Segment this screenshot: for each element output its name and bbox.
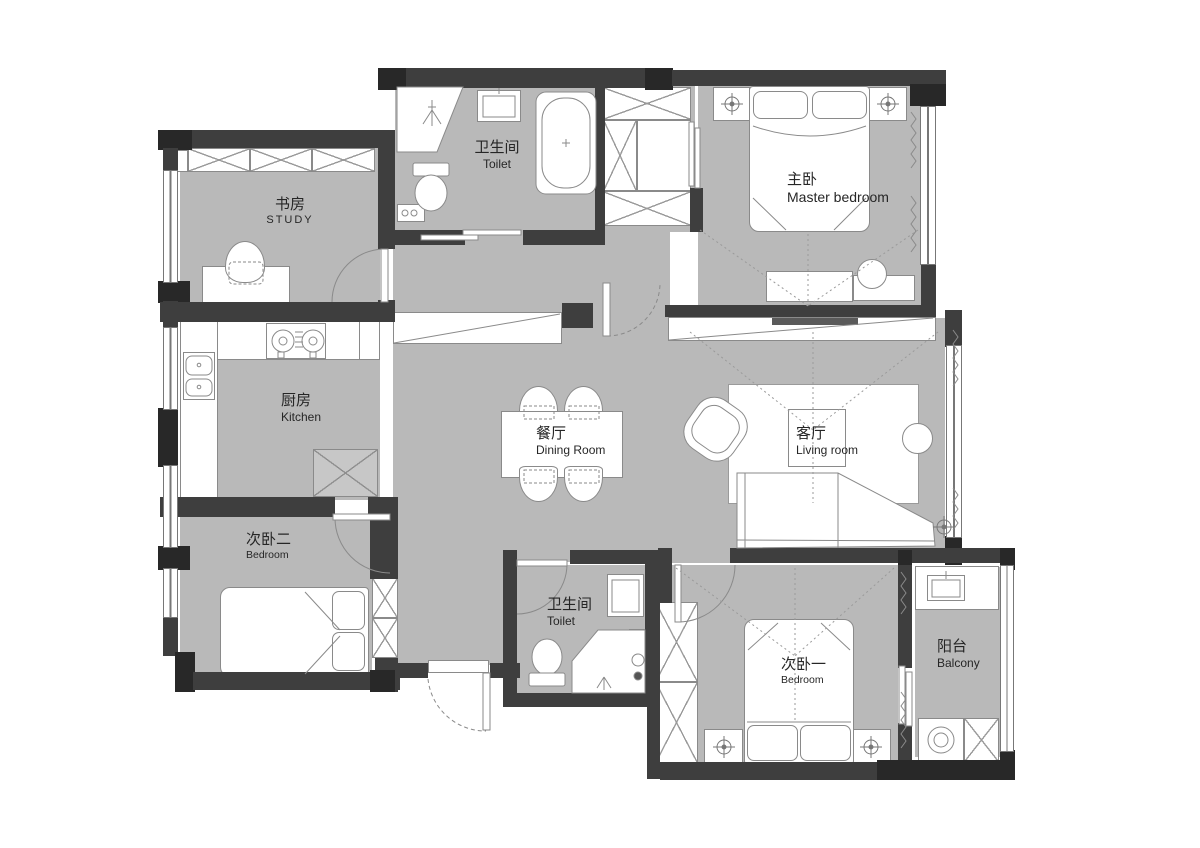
room-label-study: 书房 STUDY <box>240 196 340 227</box>
room-label-en: Master bedroom <box>787 189 889 206</box>
toilet-fixture-top <box>413 163 449 211</box>
curtain <box>911 112 916 168</box>
floor-plan: 书房 STUDY 卫生间 Toilet 主卧 Master bedroom 厨房… <box>0 0 1200 848</box>
room-label-zh: 卫生间 <box>452 139 542 157</box>
door-leaf-bedroom2 <box>333 514 390 520</box>
room-label-en: Toilet <box>452 157 542 171</box>
door-arc-entrance <box>428 679 486 731</box>
balcony-sink-basin <box>932 571 960 597</box>
room-label-en: Dining Room <box>536 443 605 457</box>
sliding-door-closet <box>689 122 694 186</box>
shelf-knobs <box>402 210 417 216</box>
room-label-en: Kitchen <box>281 410 321 424</box>
shower-bottom <box>572 630 645 693</box>
door-arc-study <box>332 249 385 302</box>
stove-burners <box>272 330 324 358</box>
room-label-en: STUDY <box>240 214 340 227</box>
door-leaf-bedroom1 <box>675 565 681 622</box>
room-label-zh: 次卧一 <box>781 656 826 674</box>
washer-drum <box>928 727 954 753</box>
lamp-icon <box>713 736 735 758</box>
room-label-en: Bedroom <box>781 674 826 687</box>
lamp-icon <box>860 736 882 758</box>
door-arc-bedroom1 <box>678 565 735 622</box>
sliding-door-balcony <box>906 672 912 726</box>
room-label-kitchen: 厨房 Kitchen <box>281 392 321 424</box>
sliding-door-closet <box>695 128 700 188</box>
door-leaf-toilet-bottom <box>517 560 567 566</box>
door-leaf-entrance <box>483 673 490 730</box>
room-label-zh: 餐厅 <box>536 425 605 443</box>
sliding-door-bath <box>421 235 478 240</box>
bath-sink-basin <box>483 88 515 117</box>
room-label-balcony: 阳台 Balcony <box>937 638 980 670</box>
lamp-icon <box>721 93 743 115</box>
cabinet-diagonal <box>394 314 560 343</box>
lamp-icon <box>877 93 899 115</box>
room-label-living: 客厅 Living room <box>796 425 858 457</box>
sliding-door-bath <box>463 230 521 235</box>
toilet-fixture-bottom <box>529 639 565 686</box>
bed-folds-bedroom2 <box>305 592 340 674</box>
curtain <box>901 572 906 614</box>
curtain <box>911 196 916 252</box>
room-label-zh: 次卧二 <box>246 531 291 549</box>
room-label-zh: 书房 <box>240 196 340 214</box>
room-label-dining: 餐厅 Dining Room <box>536 425 605 457</box>
room-label-zh: 客厅 <box>796 425 858 443</box>
room-label-en: Living room <box>796 443 858 457</box>
room-label-zh: 主卧 <box>787 171 889 189</box>
room-label-toilet-top: 卫生间 Toilet <box>452 139 542 171</box>
room-label-bedroom1: 次卧一 Bedroom <box>781 656 826 687</box>
plan-linework <box>0 0 1200 848</box>
floor-lamp-icon <box>933 516 955 538</box>
room-label-en: Bedroom <box>246 549 291 562</box>
curtain <box>953 488 958 530</box>
room-label-zh: 卫生间 <box>547 596 592 614</box>
door-leaf-master <box>603 283 610 336</box>
room-label-zh: 阳台 <box>937 638 980 656</box>
room-label-en: Toilet <box>547 614 592 628</box>
room-label-bedroom2: 次卧二 Bedroom <box>246 531 291 562</box>
cabinet-diagonal <box>669 318 933 340</box>
room-label-en: Balcony <box>937 656 980 670</box>
bathtub <box>536 92 596 194</box>
door-leaf-study <box>381 249 388 302</box>
sofa <box>737 473 935 548</box>
mirror-inner <box>612 580 639 612</box>
curtain <box>953 330 958 386</box>
door-arc-bedroom2 <box>335 518 390 573</box>
room-label-zh: 厨房 <box>281 392 321 410</box>
room-label-toilet-bottom: 卫生间 Toilet <box>547 596 592 628</box>
armchair <box>676 389 755 469</box>
kitchen-sink-bowls <box>186 356 212 396</box>
door-arc-master <box>607 283 660 336</box>
room-label-master: 主卧 Master bedroom <box>787 171 889 206</box>
